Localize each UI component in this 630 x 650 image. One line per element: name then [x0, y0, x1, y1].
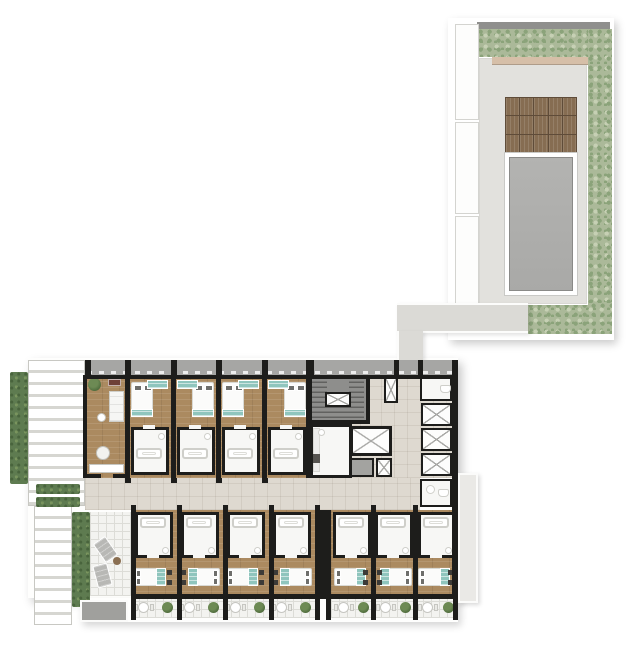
wall-segment	[216, 375, 221, 478]
wc-room	[420, 479, 452, 507]
deck-tile	[534, 135, 547, 152]
chair-icon	[288, 604, 292, 611]
wall-segment	[269, 596, 274, 620]
bathtub-icon	[380, 517, 406, 528]
guestroom	[264, 375, 310, 478]
wall-segment	[216, 478, 222, 483]
service-equipment	[313, 454, 320, 463]
bed	[226, 568, 258, 586]
wall-segment	[125, 360, 131, 376]
pillow-icon	[225, 385, 233, 391]
wall-segment	[269, 505, 274, 511]
deck-tile	[506, 135, 519, 152]
side-table	[113, 557, 121, 565]
plant-icon	[358, 602, 369, 613]
guestroom	[131, 510, 177, 598]
swimming-pool	[505, 153, 577, 295]
bathtub-icon	[232, 517, 258, 528]
sink-icon	[295, 433, 302, 440]
walkway-segment	[455, 24, 479, 120]
bathtub-icon	[278, 517, 304, 528]
bed	[334, 568, 366, 586]
door-opening	[189, 425, 201, 429]
wall-segment	[453, 596, 458, 620]
wall-segment	[269, 510, 274, 598]
bathroom	[177, 427, 215, 475]
pillow-icon	[336, 578, 341, 585]
plant-icon	[254, 602, 265, 613]
door-opening	[387, 554, 399, 558]
wall-segment	[413, 510, 418, 598]
bathtub-icon	[182, 448, 208, 459]
stool	[377, 580, 382, 585]
bed-runner	[222, 409, 244, 417]
plant-icon	[300, 602, 311, 613]
pillow-icon	[305, 570, 310, 577]
dumbwaiter-shaft	[350, 458, 374, 477]
chair-icon	[196, 604, 200, 611]
bed	[188, 568, 220, 586]
sideboard	[89, 464, 124, 473]
pool-terrace	[448, 18, 614, 340]
deck-tile	[549, 116, 562, 133]
chaise-lounge	[238, 380, 259, 389]
walkway-segment	[455, 122, 479, 214]
balcony	[331, 598, 373, 618]
chair-icon	[434, 604, 438, 611]
service-pad	[80, 600, 128, 622]
bed	[418, 568, 450, 586]
wall-segment	[413, 596, 418, 620]
door-opening	[143, 425, 155, 429]
bed	[380, 568, 412, 586]
hedge-terrace	[72, 512, 90, 607]
sink-icon	[162, 547, 169, 554]
chair-icon	[150, 604, 154, 611]
deck-tile	[549, 98, 562, 115]
wall-segment	[306, 360, 314, 376]
planting-strip-top	[478, 29, 590, 57]
stool	[259, 580, 264, 585]
door-opening	[234, 425, 246, 429]
guestroom	[218, 375, 264, 478]
bathtub-icon	[227, 448, 253, 459]
pillow-icon	[136, 578, 141, 585]
bed-runner	[284, 409, 306, 417]
pillow-icon	[136, 570, 141, 577]
wall-segment	[171, 375, 176, 478]
deck-tile	[520, 98, 533, 115]
stool	[377, 570, 382, 575]
plant-icon	[88, 378, 101, 391]
coffee-table	[97, 413, 106, 422]
wall-segment	[452, 360, 458, 599]
deck-tile	[506, 116, 519, 133]
bathroom	[181, 512, 219, 558]
sofa	[109, 391, 124, 422]
pillow-icon	[420, 578, 425, 585]
deck-tile	[506, 98, 519, 115]
sink-icon	[402, 547, 409, 554]
door-opening	[147, 554, 159, 558]
bathroom	[131, 427, 169, 475]
wall-segment	[85, 375, 458, 379]
stool	[363, 580, 368, 585]
deck-tile	[534, 98, 547, 115]
stool	[259, 570, 264, 575]
wall-segment	[131, 510, 136, 598]
guestroom	[269, 510, 315, 598]
bathroom	[418, 512, 456, 558]
stair-flight	[327, 406, 349, 418]
wall-segment	[308, 420, 370, 424]
terrace-top-wall	[477, 22, 610, 29]
wall-segment	[371, 505, 376, 511]
plant-icon	[400, 602, 411, 613]
wall-segment	[315, 596, 320, 620]
chair-icon	[376, 604, 380, 611]
bathroom	[227, 512, 265, 558]
pillow-icon	[405, 578, 410, 585]
stool	[167, 570, 172, 575]
sink-icon	[204, 433, 211, 440]
stool	[167, 580, 172, 585]
service-shaft	[376, 458, 392, 477]
chair-icon	[334, 604, 338, 611]
wall-segment	[216, 360, 222, 376]
wall-segment	[131, 505, 136, 511]
elevator-main	[350, 426, 392, 456]
wall-segment	[371, 510, 376, 598]
sink-icon	[254, 547, 261, 554]
wall-segment	[223, 596, 228, 620]
pillow-icon	[420, 570, 425, 577]
deck-tile	[563, 98, 576, 115]
bed-runner	[188, 568, 198, 586]
bathroom	[268, 427, 306, 475]
floor-plan	[0, 0, 630, 650]
pillow-icon	[228, 578, 233, 585]
bistro-table	[380, 602, 391, 613]
bed-runner	[156, 568, 166, 586]
pillow-icon	[205, 385, 213, 391]
bathroom	[333, 512, 371, 558]
service-shaft	[384, 377, 398, 403]
wall-segment	[177, 596, 182, 620]
pillow-icon	[405, 570, 410, 577]
chair-icon	[242, 604, 246, 611]
walkway-horizontal	[397, 303, 528, 333]
door-opening	[280, 425, 292, 429]
bathtub-icon	[423, 517, 449, 528]
stair-landing	[325, 392, 351, 407]
toilet-icon	[440, 385, 451, 393]
bed	[280, 568, 312, 586]
door-opening	[430, 554, 442, 558]
planting-strip-right	[588, 29, 612, 322]
bathtub-icon	[273, 448, 299, 459]
bed-runner	[192, 409, 214, 417]
sink-icon	[426, 485, 435, 494]
bathroom	[222, 427, 260, 475]
pillow-icon	[297, 385, 305, 391]
balcony	[415, 598, 458, 618]
wall-segment	[125, 375, 130, 478]
louver-panel-bottom	[34, 506, 72, 625]
bed	[134, 568, 166, 586]
pillow-icon	[134, 385, 142, 391]
wall-segment	[262, 478, 268, 483]
deck-tile	[534, 116, 547, 133]
chaise-lounge	[147, 380, 168, 389]
bed-runner	[280, 568, 290, 586]
chaise-lounge	[268, 380, 289, 389]
balcony	[269, 598, 315, 618]
door-opening	[193, 554, 205, 558]
pillow-icon	[305, 578, 310, 585]
deck-tile	[563, 135, 576, 152]
door-opening	[285, 554, 297, 558]
toilet-icon	[438, 489, 449, 497]
wall-segment	[177, 505, 182, 511]
wall-segment	[83, 474, 101, 478]
balcony	[373, 598, 415, 618]
bathtub-icon	[186, 517, 212, 528]
wall-segment	[171, 478, 177, 483]
guestroom	[173, 375, 218, 478]
deck-tile	[520, 135, 533, 152]
wall-segment	[223, 510, 228, 598]
deck-tile	[563, 116, 576, 133]
wall-segment	[262, 375, 267, 478]
wall-segment	[125, 478, 131, 483]
sink-icon	[445, 547, 452, 554]
wall-segment	[131, 596, 136, 620]
wall-segment	[394, 360, 399, 376]
elevator-shaft	[421, 403, 452, 426]
plant-icon	[162, 602, 173, 613]
sink-icon	[360, 547, 367, 554]
tv-console	[108, 379, 121, 386]
bistro-table	[338, 602, 349, 613]
timber-deck	[505, 97, 577, 153]
chaise-lounge	[177, 380, 198, 389]
guestroom	[373, 510, 415, 598]
balcony	[177, 598, 223, 618]
wall-segment	[315, 510, 331, 598]
wall-segment	[306, 375, 312, 478]
planting-strip-bottom	[528, 303, 612, 334]
sink-icon	[300, 547, 307, 554]
chair-icon	[418, 604, 422, 611]
plant-icon	[208, 602, 219, 613]
sink-icon	[249, 433, 256, 440]
wall-segment	[413, 505, 418, 511]
wall-segment	[83, 375, 87, 478]
pillow-icon	[213, 578, 218, 585]
bathroom	[273, 512, 311, 558]
planter-strip	[36, 497, 80, 507]
balcony	[131, 598, 177, 618]
sink-icon	[318, 429, 325, 436]
planter-strip	[36, 484, 80, 494]
chair-icon	[350, 604, 354, 611]
guestroom	[127, 375, 173, 478]
pillow-icon	[228, 570, 233, 577]
elevator-shaft	[421, 428, 452, 451]
bed-runner	[248, 568, 258, 586]
deck-tile	[520, 116, 533, 133]
bistro-table	[276, 602, 287, 613]
wc-room	[420, 377, 452, 401]
deck-tile	[549, 135, 562, 152]
sink-icon	[158, 433, 165, 440]
bathtub-icon	[338, 517, 364, 528]
wall-segment	[85, 360, 91, 376]
bed-runner	[131, 409, 153, 417]
wall-segment	[326, 596, 331, 620]
bathroom	[135, 512, 173, 558]
wall-segment	[452, 360, 458, 376]
bistro-table	[138, 602, 149, 613]
pillow-icon	[336, 570, 341, 577]
wall-segment	[177, 510, 182, 598]
bathroom	[375, 512, 413, 558]
wall-segment	[418, 360, 423, 376]
stair-flight	[349, 379, 364, 418]
wall-segment	[371, 596, 376, 620]
door-opening	[239, 554, 251, 558]
stool	[363, 570, 368, 575]
bistro-table	[422, 602, 433, 613]
door-opening	[345, 554, 357, 558]
side-annex	[458, 473, 478, 603]
hedge-left	[10, 372, 28, 484]
sink-icon	[208, 547, 215, 554]
wall-segment	[315, 505, 320, 511]
wall-segment	[366, 377, 370, 422]
balcony	[223, 598, 269, 618]
guestroom	[177, 510, 223, 598]
pillow-icon	[213, 570, 218, 577]
guestroom	[223, 510, 269, 598]
wall-segment	[171, 360, 177, 376]
elevator-shaft	[421, 453, 452, 476]
bathtub-icon	[140, 517, 166, 528]
chair-icon	[392, 604, 396, 611]
facade-ledge	[85, 360, 458, 376]
wall-segment	[262, 360, 268, 376]
wall-segment	[223, 505, 228, 511]
guestroom	[331, 510, 373, 598]
armchair	[96, 446, 110, 460]
bistro-table	[230, 602, 241, 613]
bathtub-icon	[136, 448, 162, 459]
bistro-table	[184, 602, 195, 613]
terrace-bench	[492, 57, 588, 65]
